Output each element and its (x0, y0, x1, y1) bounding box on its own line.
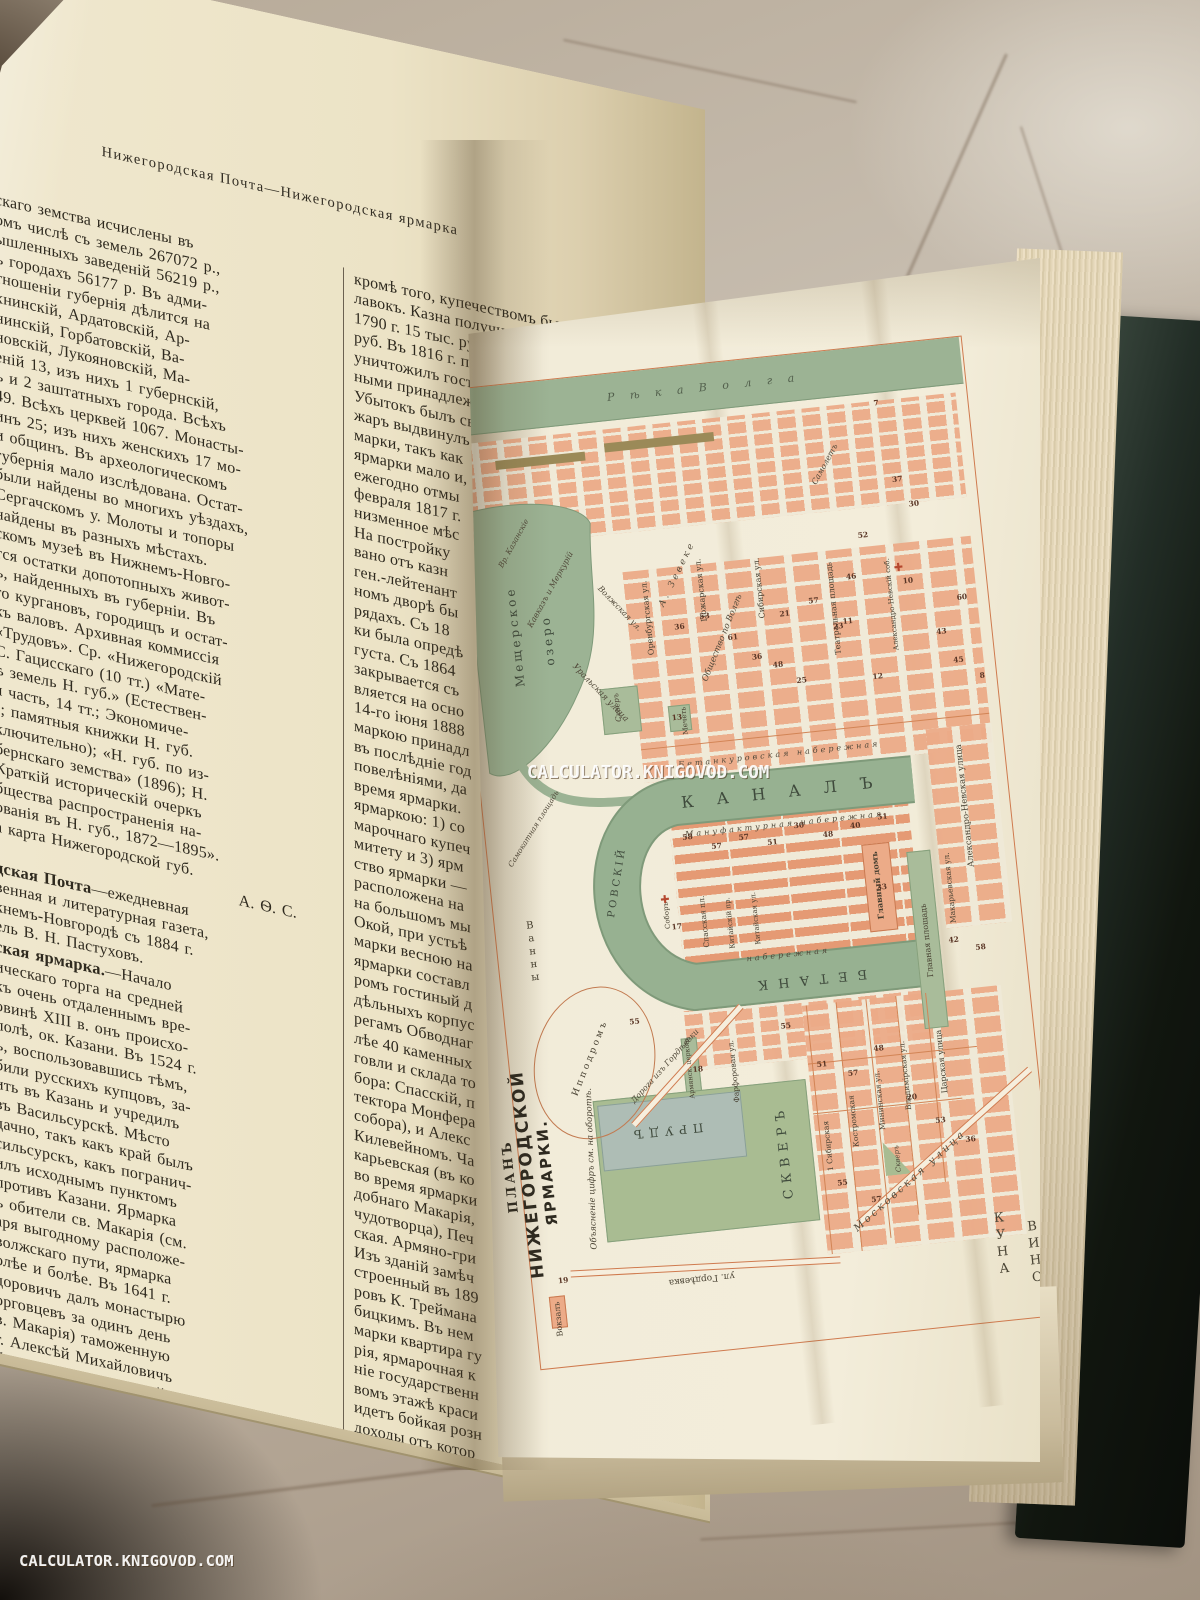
column-paragraph: скаго земства исчислены въ омъ числѣ съ … (0, 190, 341, 913)
map-number: 36 (751, 652, 762, 662)
map-number: 36 (674, 622, 685, 632)
map-number: 40 (850, 820, 861, 830)
map-number: 10 (902, 575, 913, 585)
map-number: 60 (956, 592, 967, 602)
map-number: 11 (842, 616, 853, 626)
cathedral-cross-icon: ✚ (893, 560, 904, 574)
text-column-left: скаго земства исчислены въ омъ числѣ съ … (0, 190, 341, 1600)
map-number: 57 (847, 1068, 858, 1078)
map-number: 33 (876, 882, 887, 892)
map-number: 20 (906, 1092, 917, 1102)
map-number: 43 (936, 626, 947, 636)
entry-text: —Начало ическаго торга на средней къ оче… (0, 958, 197, 1563)
map-number: 7 (873, 398, 879, 407)
photo-background: Нижегородская Почта—Нижегородская ярмарк… (0, 0, 1200, 1600)
map-number: 48 (822, 829, 833, 839)
map-number: 51 (767, 837, 778, 847)
map-number: 30 (793, 820, 804, 830)
map-number: 18 (692, 1064, 703, 1074)
map-number: 53 (935, 1115, 946, 1125)
map-number: 30 (908, 498, 919, 508)
map-number: 37 (892, 474, 903, 484)
map-number: 13 (671, 712, 682, 722)
map-number: 51 (816, 1059, 827, 1069)
map-number: 48 (772, 660, 783, 670)
map-number: 52 (857, 530, 868, 540)
map-number: 53 (699, 611, 710, 621)
map-number: 57 (738, 832, 749, 842)
map-number: 48 (873, 1043, 884, 1053)
map-number: 55 (780, 1021, 791, 1031)
meshchersky-lake (460, 497, 615, 777)
map-number: 21 (779, 609, 790, 619)
map-number: 58 (975, 942, 986, 952)
map-number: 17 (671, 922, 682, 932)
column-paragraph: ская ярмарка.—Начало ическаго торга на с… (0, 936, 341, 1600)
watermark-center: CALCULATOR.KNIGOVOD.COM (527, 763, 769, 783)
map-number: 45 (953, 655, 964, 665)
map-number: 55 (629, 1016, 640, 1026)
watermark-corner: CALCULATOR.KNIGOVOD.COM (19, 1552, 234, 1570)
map-number: 61 (727, 632, 738, 642)
map-number: 8 (979, 671, 985, 680)
map-number: 12 (872, 671, 883, 681)
map-number: 57 (808, 595, 819, 605)
map-number: 58 (682, 832, 693, 842)
fair-map: ✚ ✚ Р ѣ к а В о л г аСамолетъВр. Казанск… (408, 241, 1101, 1455)
map-number: 57 (871, 1194, 882, 1204)
map-number: 42 (948, 935, 959, 945)
map-number: 36 (965, 1134, 976, 1144)
map-number: 46 (845, 571, 856, 581)
map-number: 57 (711, 841, 722, 851)
map-number: 25 (796, 675, 807, 685)
map-plate: ✚ ✚ Р ѣ к а В о л г аСамолетъВр. Казанск… (465, 258, 1040, 1462)
map-number: 51 (877, 811, 888, 821)
map-number: 55 (837, 1178, 848, 1188)
